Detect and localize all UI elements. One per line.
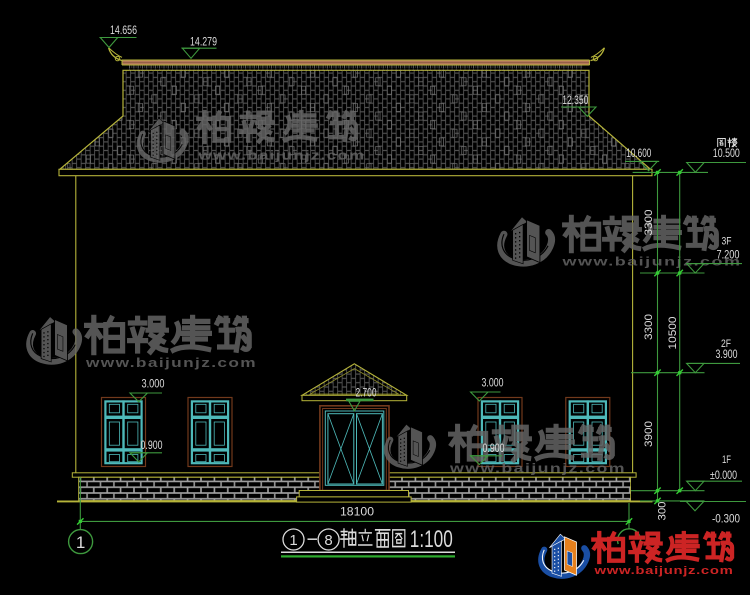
svg-text:3300: 3300 <box>643 314 655 340</box>
svg-text:0.900: 0.900 <box>141 438 163 452</box>
svg-text:±0.000: ±0.000 <box>710 468 737 482</box>
svg-text:10.600: 10.600 <box>626 146 651 160</box>
svg-text:300: 300 <box>657 502 669 521</box>
svg-text:10.500: 10.500 <box>713 146 740 160</box>
svg-text:8: 8 <box>324 532 332 549</box>
svg-text:10500: 10500 <box>667 317 679 350</box>
svg-text:2.700: 2.700 <box>356 386 377 400</box>
svg-text:14.279: 14.279 <box>190 35 217 49</box>
svg-text:1F: 1F <box>722 454 731 466</box>
svg-text:7.200: 7.200 <box>717 247 740 261</box>
svg-text:www.baijunjz.com: www.baijunjz.com <box>449 462 626 476</box>
svg-text:3.000: 3.000 <box>142 376 165 390</box>
svg-text:2F: 2F <box>721 338 731 350</box>
svg-text:www.baijunjz.com: www.baijunjz.com <box>593 565 733 577</box>
svg-text:14.656: 14.656 <box>110 23 137 37</box>
svg-text:www.baijunjz.com: www.baijunjz.com <box>561 255 741 269</box>
svg-text:3900: 3900 <box>643 421 655 447</box>
svg-text:-0.300: -0.300 <box>712 511 740 525</box>
svg-text:3.000: 3.000 <box>482 376 504 390</box>
svg-text:1: 1 <box>76 533 85 552</box>
svg-text:12.350: 12.350 <box>562 93 588 107</box>
svg-text:1:100: 1:100 <box>410 526 453 553</box>
svg-text:1: 1 <box>289 532 297 549</box>
svg-text:18100: 18100 <box>340 505 374 519</box>
svg-text:www.baijunjz.com: www.baijunjz.com <box>197 148 365 163</box>
svg-text:3300: 3300 <box>643 210 655 236</box>
svg-text:3F: 3F <box>722 235 732 247</box>
svg-text:www.baijunjz.com: www.baijunjz.com <box>85 356 257 370</box>
svg-text:0.900: 0.900 <box>483 441 505 455</box>
